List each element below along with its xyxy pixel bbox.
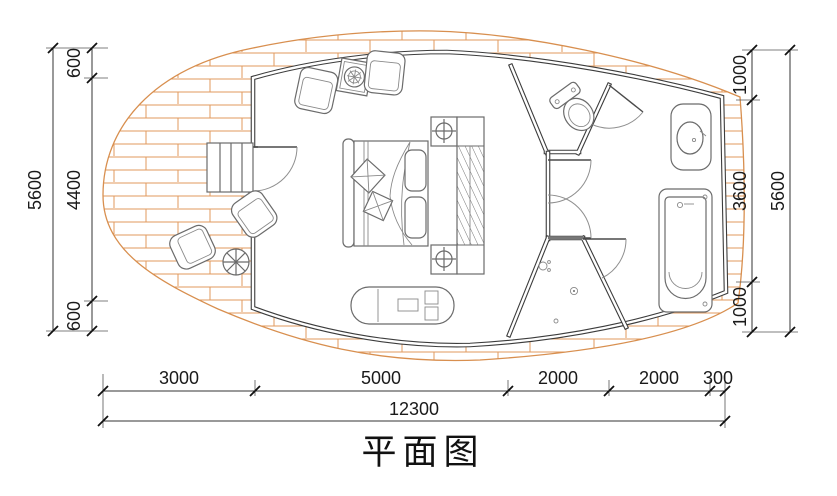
chaise-lounge (351, 287, 454, 324)
bed-pillow (405, 197, 426, 238)
dim-right-overall: 5600 (768, 171, 788, 211)
dim-bottom-overall: 12300 (389, 399, 439, 419)
dim-bottom-300: 300 (703, 368, 733, 388)
bed-footboard (343, 139, 354, 247)
dim-left-4400: 4400 (64, 170, 84, 210)
dim-bottom-5000: 5000 (361, 368, 401, 388)
washbasin (671, 104, 711, 170)
dim-left-overall: 5600 (25, 170, 45, 210)
armchair-right (364, 50, 406, 96)
dimension-right: 1000 3600 1000 5600 (730, 45, 798, 337)
dim-bottom-2000-b: 2000 (639, 368, 679, 388)
bed-pillow (405, 150, 426, 191)
armchair-left (293, 66, 339, 115)
dim-right-3600: 3600 (730, 171, 750, 211)
nightstand-bottom (431, 245, 457, 274)
dim-right-1000-top: 1000 (730, 55, 750, 95)
wardrobe (457, 117, 484, 274)
bathtub (659, 189, 712, 312)
dim-bottom-2000-a: 2000 (538, 368, 578, 388)
bed (343, 139, 428, 247)
entry-steps (207, 143, 253, 192)
nightstand-top (431, 117, 457, 146)
floor-plan-document: 600 4400 600 5600 1000 3600 1000 5600 30… (0, 0, 837, 496)
parasol-table-icon (223, 249, 249, 275)
dimension-bottom: 3000 5000 2000 2000 300 12300 (98, 368, 733, 428)
dim-bottom-3000: 3000 (159, 368, 199, 388)
floor-plan-svg: 600 4400 600 5600 1000 3600 1000 5600 30… (0, 0, 837, 496)
page-title: 平面图 (361, 433, 484, 472)
dim-left-600-top: 600 (64, 48, 84, 78)
dim-left-600-bottom: 600 (64, 301, 84, 331)
dim-right-1000-bottom: 1000 (730, 287, 750, 327)
dimension-left: 600 4400 600 5600 (25, 43, 108, 336)
